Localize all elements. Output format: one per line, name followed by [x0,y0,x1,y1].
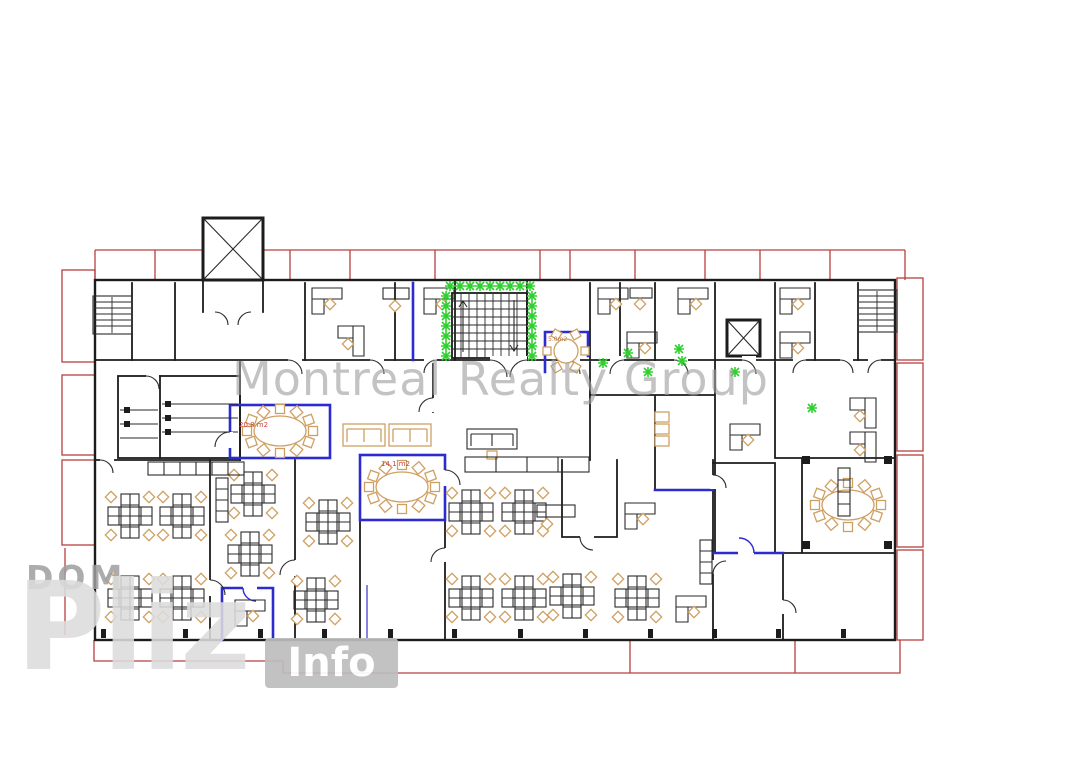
logo-pliz-text: Pliz [16,566,248,688]
room-label-conference-center: 14.1 m2 [381,460,410,468]
elevator-right [727,320,760,356]
watermark-text: Montreal Realty Group [232,352,769,406]
logo-info-text: Info [287,640,375,686]
floor-plan-page: 20.8 m2 14.1 m2 5.0m2 Montreal Realty Gr… [0,0,1087,768]
logo-info-badge: Info [265,638,398,688]
room-label-meeting-small: 5.0m2 [548,336,567,343]
elevator-top-left [203,218,263,280]
room-label-conference-left: 20.8 m2 [239,421,268,429]
